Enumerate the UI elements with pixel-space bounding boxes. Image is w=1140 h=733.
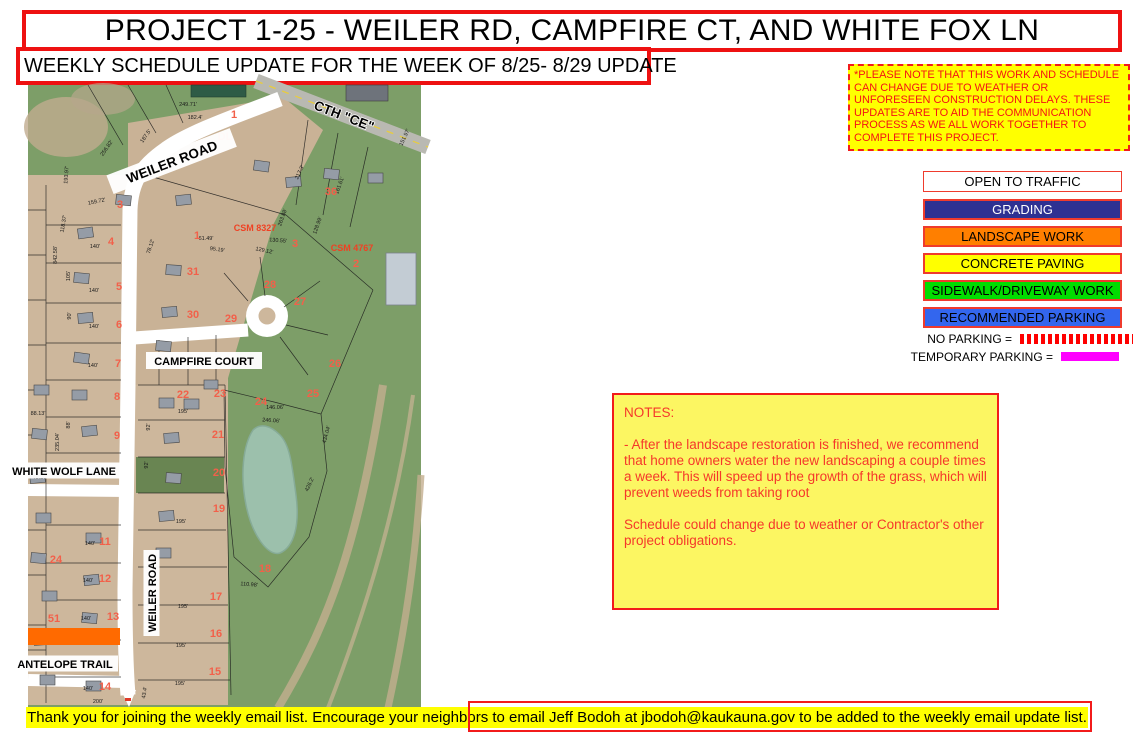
lot-number: 4: [108, 236, 115, 248]
temporary-parking-row: TEMPORARY PARKING =: [858, 349, 1133, 364]
lot-number: 12: [99, 573, 111, 585]
svg-text:WEILER ROAD: WEILER ROAD: [147, 554, 159, 632]
lot-number: 9: [114, 430, 120, 442]
svg-text:ANTELOPE TRAIL: ANTELOPE TRAIL: [17, 659, 113, 671]
parcel-dimension: 195': [175, 681, 185, 687]
legend-item-sidewalk-driveway-work: SIDEWALK/DRIVEWAY WORK: [923, 280, 1122, 301]
lot-number: 28: [264, 279, 276, 291]
project-title: PROJECT 1-25 - WEILER RD, CAMPFIRE CT, A…: [105, 14, 1039, 48]
cul-de-sac-island: [259, 308, 276, 325]
legend-label: OPEN TO TRAFFIC: [964, 174, 1080, 189]
lot-number: 3: [292, 238, 298, 250]
weekly-update-subtitle: WEEKLY SCHEDULE UPDATE FOR THE WEEK OF 8…: [24, 55, 677, 78]
legend-label: GRADING: [992, 202, 1053, 217]
lot-number: 1: [231, 109, 237, 121]
lot-number: 11: [99, 536, 111, 548]
parcel-dimension: 182.4': [188, 115, 203, 121]
road-end-marker: [125, 698, 131, 701]
parcel-dimension: 140': [88, 363, 98, 369]
parcel-dimension: 146.06': [266, 405, 284, 411]
weather-notice-box: *PLEASE NOTE THAT THIS WORK AND SCHEDULE…: [848, 64, 1130, 151]
lot-number: 36: [325, 186, 337, 198]
csm-4767-label: CSM 4767: [331, 243, 374, 253]
lot-number: 8: [114, 391, 120, 403]
lot-number: 15: [209, 666, 221, 678]
lot-number: 25: [307, 388, 319, 400]
lot-number: 26: [329, 358, 341, 370]
lot-number: 18: [259, 563, 271, 575]
lot-number: 14: [99, 681, 112, 693]
lot-number: 30: [187, 309, 199, 321]
parcel-dimension: 195': [178, 409, 188, 415]
parcel-dimension: 140': [89, 324, 99, 330]
svg-text:CAMPFIRE COURT: CAMPFIRE COURT: [154, 356, 254, 368]
notes-heading: NOTES:: [624, 405, 987, 421]
footer-bar: Thank you for joining the weekly email l…: [26, 707, 1088, 728]
lot-number: 31: [187, 266, 199, 278]
footer-text: Thank you for joining the weekly email l…: [27, 709, 1087, 726]
lot-number: 23: [214, 388, 226, 400]
road-campfire-court: [134, 330, 248, 338]
parcel-dimension: 90': [67, 312, 73, 319]
legend-item-grading: GRADING: [923, 199, 1122, 220]
notes-paragraph: Schedule could change due to weather or …: [624, 517, 987, 549]
page: { "header": { "title": "PROJECT 1-25 - W…: [0, 0, 1140, 733]
legend-item-recommended-parking: RECOMMENDED PARKING: [923, 307, 1122, 328]
lot-number: 5: [116, 281, 122, 293]
lot-number: 6: [116, 319, 122, 331]
legend-label: RECOMMENDED PARKING: [940, 310, 1106, 325]
lot-number: 22: [177, 389, 189, 401]
road-white-wolf-lane: [28, 490, 130, 491]
legend-label: CONCRETE PAVING: [961, 256, 1085, 271]
parcel-dimension: 200': [93, 699, 103, 705]
lot-number: 27: [294, 296, 306, 308]
parcel-dimension: 140': [81, 616, 91, 622]
parcel-dimension: 140': [83, 578, 93, 584]
lot-number: 24: [255, 396, 268, 408]
lot-number: 19: [213, 503, 225, 515]
parcel-dimension: 842.58': [53, 246, 59, 264]
notes-paragraph: - After the landscape restoration is fin…: [624, 437, 987, 501]
parcel-dimension: 195': [176, 519, 186, 525]
parcel-dimension: 235.04': [55, 433, 61, 451]
parcel-dimension: 246.06': [262, 417, 280, 424]
parcel-dimension: 92': [144, 461, 150, 468]
parcel-dimension: 88': [66, 421, 72, 428]
lot-number: 13: [107, 611, 119, 623]
landscape-work-marker: [28, 628, 120, 645]
parcel-dimension: 140': [85, 541, 95, 547]
building-gray-roof: [346, 85, 388, 101]
legend: OPEN TO TRAFFIC GRADING LANDSCAPE WORK C…: [923, 171, 1122, 331]
no-parking-row: NO PARKING =: [858, 331, 1133, 346]
parcel-dimension: 105': [66, 271, 72, 281]
campfire-court-label: CAMPFIRE COURT: [146, 352, 262, 369]
parcel-dimension: 195': [176, 643, 186, 649]
lot-number: 29: [225, 313, 237, 325]
parcel-dimension: 249.71': [179, 102, 197, 108]
lot-number: 3: [117, 199, 123, 211]
legend-item-open-to-traffic: OPEN TO TRAFFIC: [923, 171, 1122, 192]
lot-number: 2: [353, 258, 359, 270]
antelope-trail-label: ANTELOPE TRAIL: [12, 656, 118, 672]
weekly-update-subtitle-box: WEEKLY SCHEDULE UPDATE FOR THE WEEK OF 8…: [16, 47, 651, 85]
notes-box: NOTES: - After the landscape restoration…: [612, 393, 999, 610]
lot-number: 21: [212, 429, 224, 441]
legend-item-landscape-work: LANDSCAPE WORK: [923, 226, 1122, 247]
lot-number: 1: [194, 230, 200, 242]
white-wolf-lane-label: WHITE WOLF LANE: [6, 463, 122, 479]
parcel-dimension: 88.13': [31, 411, 46, 417]
legend-item-concrete-paving: CONCRETE PAVING: [923, 253, 1122, 274]
parcel-dimension: 140': [90, 244, 100, 250]
weather-notice-text: *PLEASE NOTE THAT THIS WORK AND SCHEDULE…: [854, 69, 1119, 144]
weiler-road-side-label: WEILER ROAD: [144, 550, 160, 636]
temporary-parking-label: TEMPORARY PARKING =: [911, 350, 1053, 364]
parcel-dimension: 195': [178, 604, 188, 610]
csm-8327-label: CSM 8327: [234, 223, 277, 233]
parcel-dimension: 92': [146, 423, 152, 430]
project-title-box: PROJECT 1-25 - WEILER RD, CAMPFIRE CT, A…: [22, 10, 1122, 52]
lot-number: 24: [50, 554, 63, 566]
lot-number: 7: [115, 358, 121, 370]
lot-number: 16: [210, 628, 222, 640]
parcel-dimension: 61.49': [199, 236, 214, 242]
parking-key: NO PARKING = TEMPORARY PARKING =: [858, 331, 1133, 367]
no-parking-label: NO PARKING =: [927, 332, 1012, 346]
svg-text:WHITE WOLF LANE: WHITE WOLF LANE: [12, 466, 116, 478]
parcel-dimension: 140': [83, 686, 93, 692]
no-parking-swatch: [1020, 334, 1133, 344]
lot-number: 17: [210, 591, 222, 603]
temporary-parking-swatch: [1061, 352, 1119, 361]
aerial-map-svg: 249.71'182.4'256.82'187.5'193.97'159.72'…: [28, 85, 421, 708]
aerial-map: 249.71'182.4'256.82'187.5'193.97'159.72'…: [28, 85, 421, 708]
warehouse-building: [386, 253, 416, 305]
lot-number: 20: [213, 467, 225, 479]
legend-label: SIDEWALK/DRIVEWAY WORK: [931, 283, 1113, 298]
legend-label: LANDSCAPE WORK: [961, 229, 1084, 244]
parcel-dimension: 140': [89, 288, 99, 294]
lot-number: 51: [48, 613, 60, 625]
building-green-roof: [191, 85, 246, 97]
